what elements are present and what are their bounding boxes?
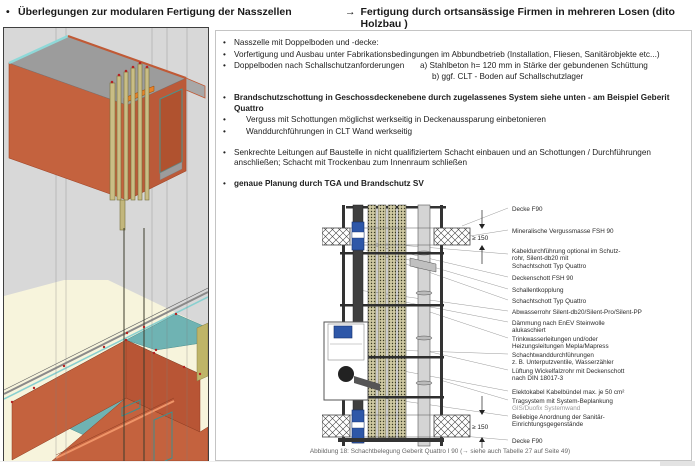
list-item: • Verguss mit Schottungen möglichst werk… xyxy=(223,115,685,126)
bullet-marker: • xyxy=(223,127,234,138)
arrow-icon: → xyxy=(345,6,356,30)
diagram-label: Deckenschott FSH 90 xyxy=(512,275,694,282)
page-subtitle: Fertigung durch ortsansässige Firmen in … xyxy=(361,6,695,30)
bullet-marker: • xyxy=(223,115,234,126)
bullet-marker: • xyxy=(6,6,18,18)
page-title: Überlegungen zur modularen Fertigung der… xyxy=(18,6,292,18)
slide-header: • Überlegungen zur modularen Fertigung d… xyxy=(0,4,695,26)
header-subtitle-row: → Fertigung durch ortsansässige Firmen i… xyxy=(345,6,695,30)
slide: • Überlegungen zur modularen Fertigung d… xyxy=(0,0,695,466)
diagram-label: Kabeldurchführung optional im Schutz- ro… xyxy=(512,248,694,270)
header-title-row: • Überlegungen zur modularen Fertigung d… xyxy=(6,6,292,18)
bullet-marker: • xyxy=(223,179,234,190)
bullet-marker: • xyxy=(223,38,234,49)
figure-caption: Abbildung 18: Schachtbelegung Geberit Qu… xyxy=(286,448,594,455)
option-a: a) Stahlbeton h= 120 mm in Stärke der ge… xyxy=(420,61,648,72)
module-isometric-drawing xyxy=(4,28,208,461)
dimension-bottom: ≥ 150 xyxy=(472,424,489,431)
diagram-label: Schachtwanddurchführungen z. B. Unterput… xyxy=(512,352,694,367)
list-item: • Doppelboden nach Schallschutzanforderu… xyxy=(223,61,685,83)
diagram-label: Trinkwasserleitungen und/oder Heizungsle… xyxy=(512,336,694,351)
diagram-label: Lüftung Wickelfalzrohr mit Deckenschott … xyxy=(512,368,694,383)
bullet-marker: • xyxy=(223,148,234,170)
diagram-label: Mineralische Vergussmasse FSH 90 xyxy=(512,228,694,235)
list-item: • Wanddurchführungen in CLT Wand werksei… xyxy=(223,127,685,138)
bottom-divider xyxy=(0,461,695,462)
bullet-marker: • xyxy=(223,93,234,115)
option-b: b) ggf. CLT - Boden auf Schallschutzlage… xyxy=(420,72,648,83)
diagram-label: Decke F90 xyxy=(512,206,694,213)
diagram-label: Schachtschott Typ Quattro xyxy=(512,298,694,305)
diagram-label: Tragsystem mit System-BeplankungGIS/Duof… xyxy=(512,398,694,413)
bottom-right-edge xyxy=(660,461,695,466)
diagram-label: Decke F90 xyxy=(512,438,694,445)
diagram-label: Beliebige Anordnung der Sanitär- Einrich… xyxy=(512,414,694,429)
bullet-list: • Nasszelle mit Doppelboden und -decke: … xyxy=(223,38,685,191)
list-item: • Senkrechte Leitungen auf Baustelle in … xyxy=(223,148,685,170)
list-item: • Brandschutzschottung in Geschossdecken… xyxy=(223,93,685,115)
diagram-label: Abwasserrohr Silent-db20/Silent-Pro/Sile… xyxy=(512,309,694,316)
option-list: a) Stahlbeton h= 120 mm in Stärke der ge… xyxy=(420,61,648,83)
diagram-label: Dämmung nach EnEV Steinwolle alukaschier… xyxy=(512,320,694,335)
list-item: • genaue Planung durch TGA und Brandschu… xyxy=(223,179,685,190)
dimension-top: ≥ 150 xyxy=(472,235,489,242)
list-item: • Nasszelle mit Doppelboden und -decke: xyxy=(223,38,685,49)
diagram-label: Schallentkopplung xyxy=(512,287,694,294)
bullet-marker: • xyxy=(223,50,234,61)
diagram-label-sub: GIS/Duofix Systemwand xyxy=(512,405,694,412)
figure-3d-module xyxy=(3,27,209,462)
bullet-marker: • xyxy=(223,61,234,83)
list-item: • Vorfertigung und Ausbau unter Fabrikat… xyxy=(223,50,685,61)
diagram-label: Elektokabel Kabelbündel max. je 50 cm² xyxy=(512,389,694,396)
